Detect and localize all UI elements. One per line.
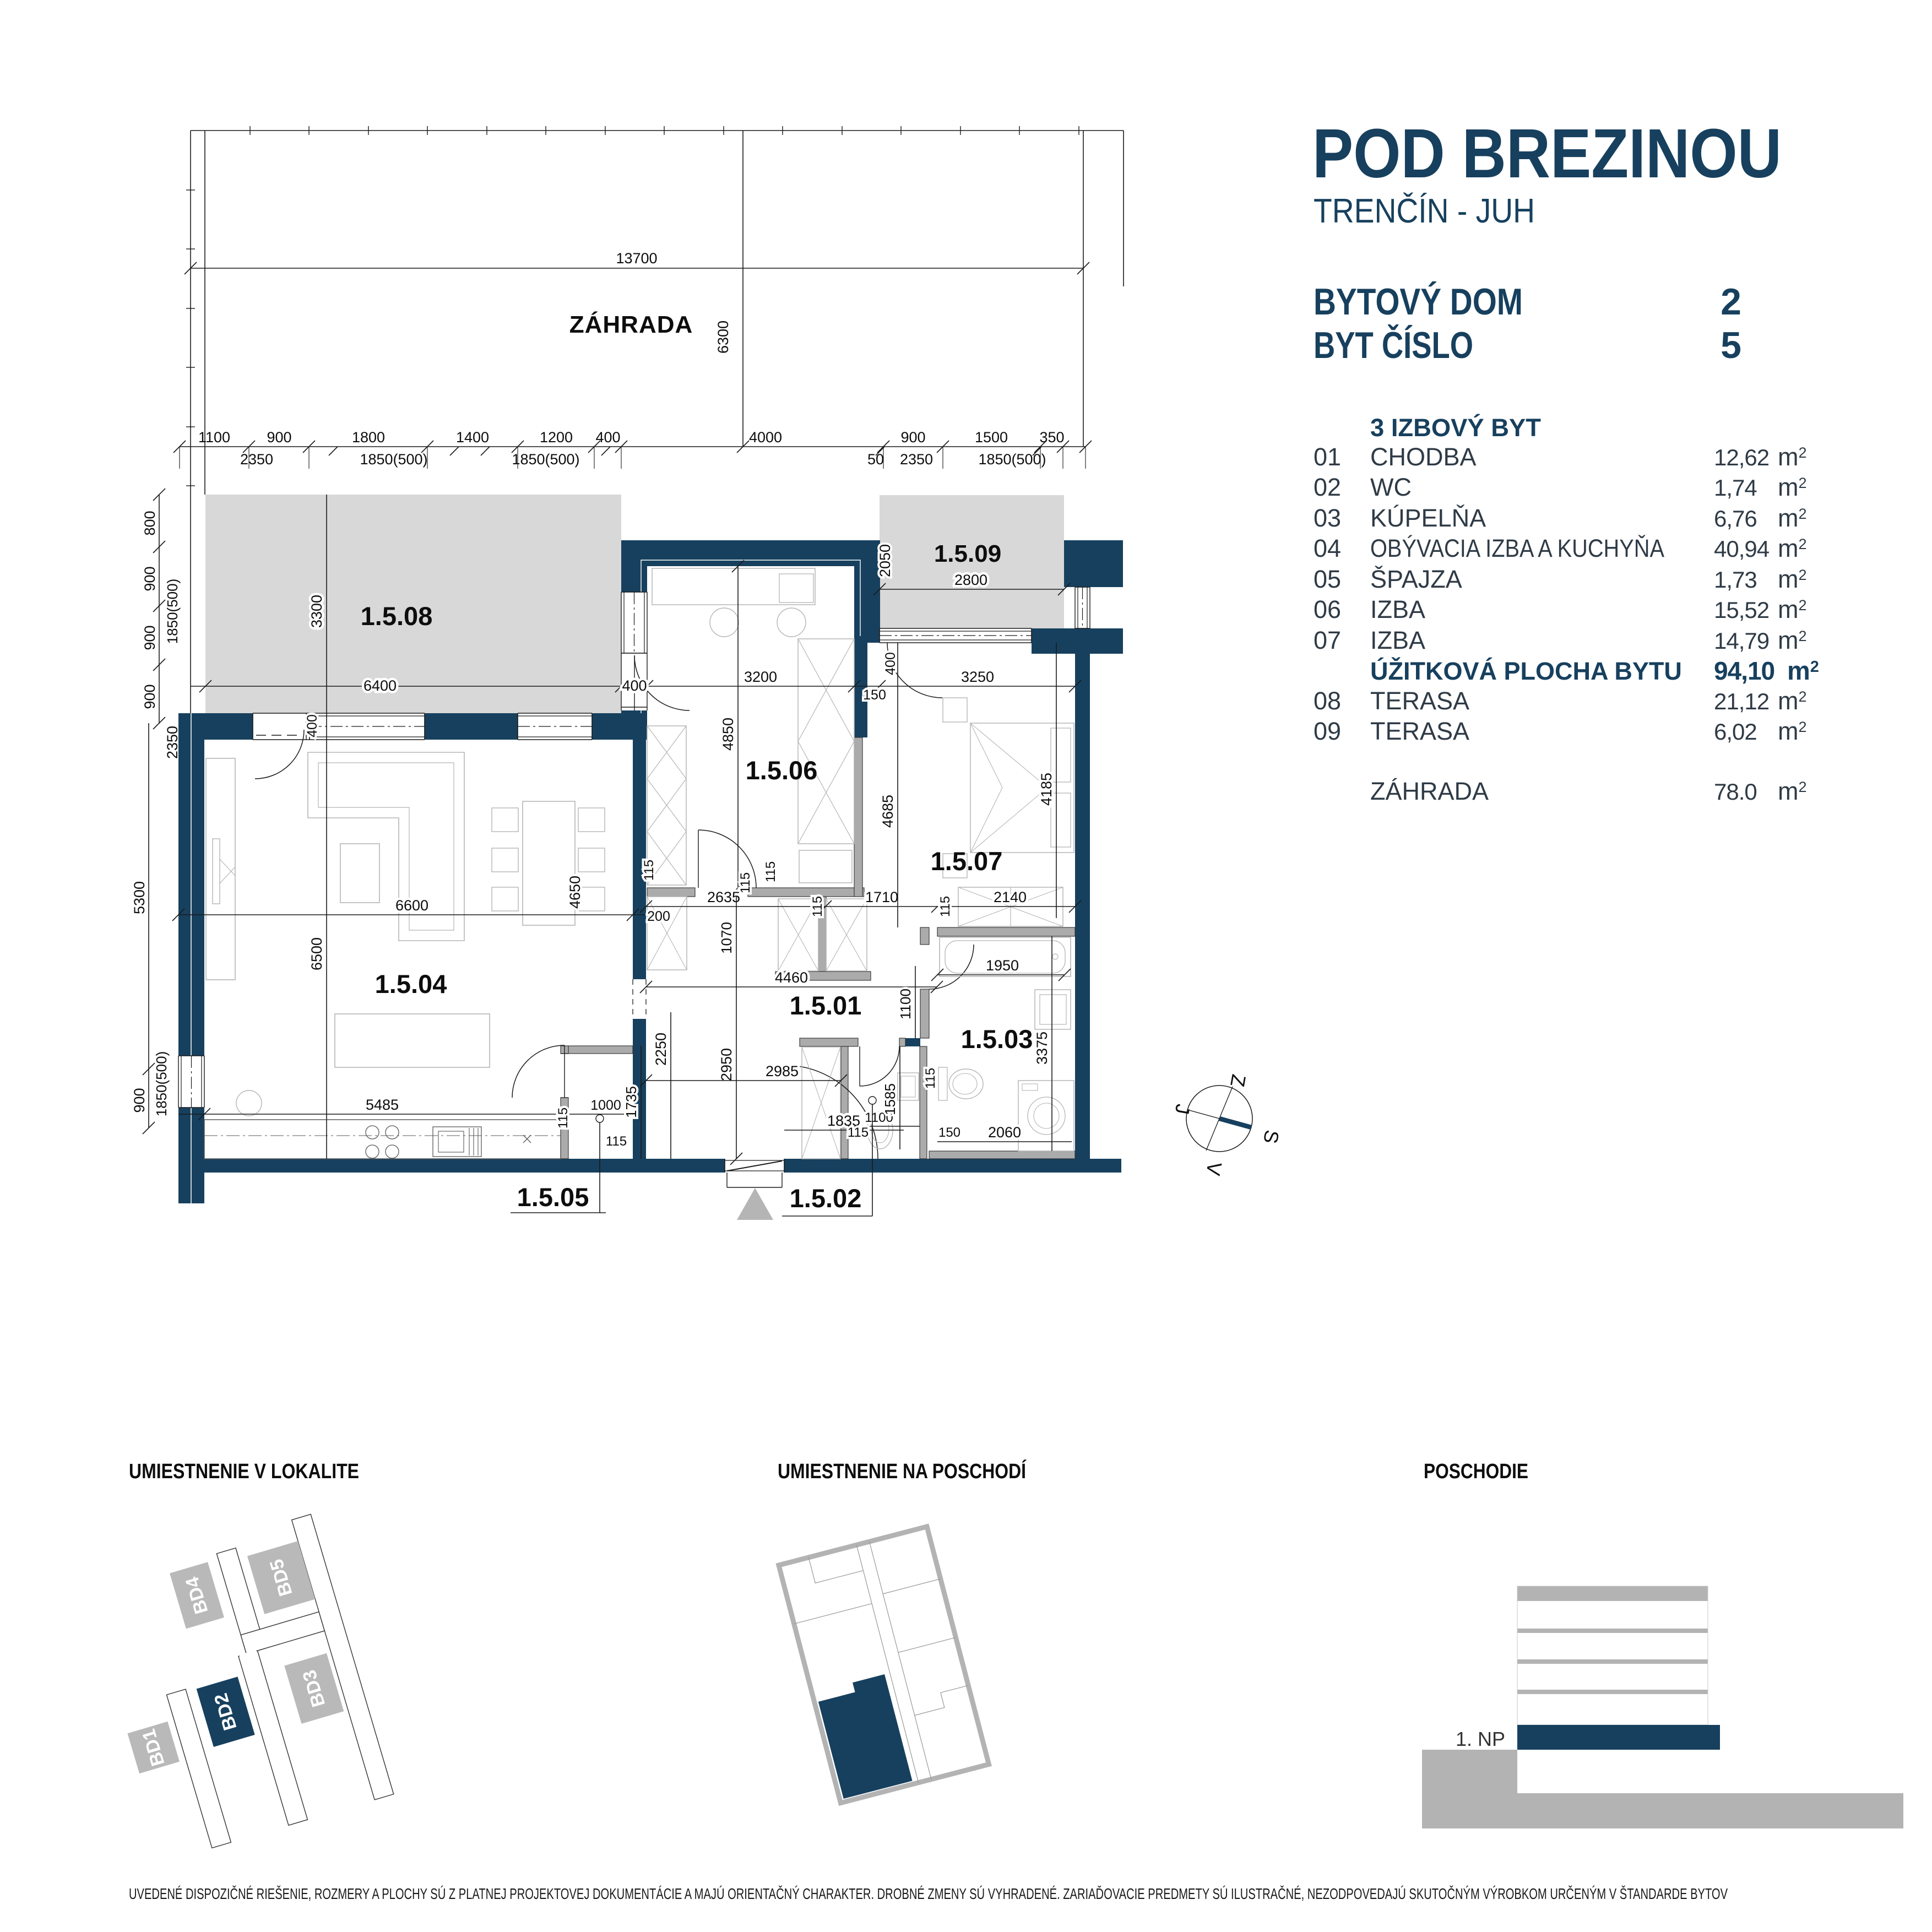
svg-text:TERASA: TERASA: [1370, 687, 1469, 715]
svg-text:6500: 6500: [308, 937, 325, 970]
svg-text:01: 01: [1314, 443, 1341, 471]
svg-text:TERASA: TERASA: [1370, 717, 1469, 745]
svg-text:BYTOVÝ DOM: BYTOVÝ DOM: [1314, 281, 1523, 323]
svg-text:115: 115: [763, 861, 778, 882]
svg-text:4650: 4650: [567, 876, 583, 909]
svg-text:900: 900: [267, 429, 291, 446]
svg-text:4460: 4460: [775, 969, 808, 986]
svg-text:5300: 5300: [131, 881, 148, 914]
svg-text:5: 5: [1721, 324, 1741, 366]
svg-text:2350: 2350: [240, 451, 273, 468]
svg-text:1.5.01: 1.5.01: [790, 991, 862, 1020]
svg-text:1.5.05: 1.5.05: [517, 1182, 589, 1212]
svg-text:900: 900: [131, 1088, 148, 1112]
svg-text:12,62: 12,62: [1714, 444, 1769, 470]
svg-text:4685: 4685: [880, 795, 896, 828]
svg-text:4850: 4850: [720, 718, 736, 751]
svg-text:1850(500): 1850(500): [153, 1051, 170, 1117]
svg-text:UMIESTNENIE NA POSCHODÍ: UMIESTNENIE NA POSCHODÍ: [778, 1459, 1027, 1483]
svg-text:1.5.09: 1.5.09: [934, 540, 1001, 567]
svg-text:1.5.03: 1.5.03: [961, 1024, 1033, 1054]
svg-text:115: 115: [642, 860, 656, 881]
svg-text:1800: 1800: [352, 429, 385, 446]
svg-text:1100: 1100: [198, 429, 230, 446]
svg-text:TRENČÍN - JUH: TRENČÍN - JUH: [1314, 192, 1535, 230]
svg-text:1.5.07: 1.5.07: [931, 846, 1003, 876]
svg-text:07: 07: [1314, 626, 1341, 654]
svg-text:400: 400: [622, 677, 647, 694]
svg-text:50: 50: [867, 451, 884, 468]
svg-text:6400: 6400: [363, 677, 397, 694]
svg-text:POSCHODIE: POSCHODIE: [1424, 1460, 1528, 1483]
svg-text:350: 350: [1039, 429, 1064, 446]
svg-text:4000: 4000: [749, 429, 782, 446]
svg-text:115: 115: [923, 1068, 938, 1089]
svg-text:1100: 1100: [897, 989, 914, 1019]
svg-text:08: 08: [1314, 687, 1341, 715]
svg-text:2350: 2350: [900, 451, 933, 468]
svg-text:IZBA: IZBA: [1370, 595, 1425, 623]
svg-text:BYT ČÍSLO: BYT ČÍSLO: [1314, 324, 1473, 366]
svg-text:1,74: 1,74: [1714, 475, 1757, 501]
svg-text:1.5.06: 1.5.06: [746, 756, 818, 785]
svg-text:4185: 4185: [1038, 773, 1055, 806]
svg-text:UMIESTNENIE V LOKALITE: UMIESTNENIE V LOKALITE: [129, 1460, 359, 1483]
svg-text:09: 09: [1314, 717, 1341, 745]
svg-text:1850(500): 1850(500): [978, 451, 1046, 468]
svg-text:1. NP: 1. NP: [1456, 1728, 1505, 1750]
svg-text:2250: 2250: [653, 1033, 669, 1066]
svg-text:5485: 5485: [366, 1097, 399, 1113]
svg-text:21,12: 21,12: [1714, 688, 1769, 714]
svg-text:ŠPAJZA: ŠPAJZA: [1370, 565, 1462, 593]
svg-text:400: 400: [883, 652, 898, 675]
svg-text:94,10: 94,10: [1714, 656, 1774, 685]
svg-text:2: 2: [1721, 281, 1741, 323]
svg-text:115: 115: [938, 896, 953, 917]
svg-text:1500: 1500: [975, 429, 1008, 446]
svg-text:KÚPELŇA: KÚPELŇA: [1370, 504, 1486, 532]
svg-text:2060: 2060: [988, 1124, 1021, 1141]
svg-text:03: 03: [1314, 504, 1341, 532]
svg-text:1735: 1735: [623, 1086, 639, 1118]
svg-text:2800: 2800: [954, 572, 987, 588]
svg-text:115: 115: [810, 896, 825, 917]
svg-text:OBÝVACIA IZBA A KUCHYŇA: OBÝVACIA IZBA A KUCHYŇA: [1370, 534, 1664, 562]
svg-text:1.5.02: 1.5.02: [790, 1184, 862, 1213]
svg-text:6,76: 6,76: [1714, 506, 1757, 531]
svg-text:1585: 1585: [882, 1083, 898, 1115]
svg-text:900: 900: [142, 566, 158, 591]
svg-text:115: 115: [738, 872, 753, 893]
svg-text:WC: WC: [1370, 473, 1412, 501]
svg-text:02: 02: [1314, 473, 1341, 501]
svg-text:3250: 3250: [961, 669, 994, 685]
svg-text:6600: 6600: [395, 897, 428, 914]
svg-text:2350: 2350: [164, 726, 181, 759]
svg-text:2140: 2140: [994, 889, 1027, 905]
svg-text:1710: 1710: [865, 889, 898, 905]
svg-text:ZÁHRADA: ZÁHRADA: [1370, 777, 1489, 805]
svg-text:IZBA: IZBA: [1370, 626, 1425, 654]
svg-text:1000: 1000: [590, 1098, 621, 1113]
svg-text:900: 900: [142, 684, 158, 709]
svg-text:ZÁHRADA: ZÁHRADA: [569, 311, 693, 338]
svg-text:UVEDENÉ DISPOZIČNÉ RIEŠENIE, R: UVEDENÉ DISPOZIČNÉ RIEŠENIE, ROZMERY A P…: [129, 1885, 1728, 1902]
svg-text:115: 115: [556, 1108, 571, 1128]
svg-text:1.5.04: 1.5.04: [375, 969, 447, 998]
svg-text:06: 06: [1314, 595, 1341, 623]
svg-text:CHODBA: CHODBA: [1370, 443, 1477, 471]
svg-text:3300: 3300: [308, 595, 325, 628]
svg-text:1850(500): 1850(500): [512, 451, 579, 468]
svg-text:1.5.08: 1.5.08: [361, 601, 433, 631]
svg-text:1,73: 1,73: [1714, 567, 1757, 593]
svg-text:150: 150: [938, 1125, 960, 1140]
svg-text:2050: 2050: [877, 544, 893, 577]
svg-text:ÚŽITKOVÁ PLOCHA BYTU: ÚŽITKOVÁ PLOCHA BYTU: [1370, 657, 1682, 685]
svg-text:78.0: 78.0: [1714, 779, 1757, 805]
svg-text:1850(500): 1850(500): [164, 579, 181, 644]
svg-text:400: 400: [595, 429, 620, 446]
svg-text:3 IZBOVÝ BYT: 3 IZBOVÝ BYT: [1370, 414, 1541, 442]
svg-text:3200: 3200: [744, 669, 777, 685]
svg-text:2950: 2950: [718, 1048, 735, 1081]
svg-text:40,94: 40,94: [1714, 536, 1770, 562]
svg-text:05: 05: [1314, 565, 1341, 593]
svg-text:115: 115: [848, 1125, 869, 1140]
svg-text:2635: 2635: [707, 889, 740, 905]
svg-text:1070: 1070: [718, 922, 735, 954]
svg-text:1950: 1950: [986, 957, 1019, 974]
svg-text:3375: 3375: [1034, 1032, 1050, 1065]
svg-text:2985: 2985: [766, 1063, 799, 1079]
svg-text:1850(500): 1850(500): [360, 451, 427, 468]
svg-text:6,02: 6,02: [1714, 719, 1757, 745]
svg-text:04: 04: [1314, 534, 1341, 562]
svg-text:15,52: 15,52: [1714, 597, 1769, 623]
svg-text:150: 150: [863, 687, 886, 703]
svg-text:900: 900: [900, 429, 925, 446]
svg-text:200: 200: [647, 909, 670, 924]
svg-text:115: 115: [606, 1134, 627, 1149]
svg-text:6300: 6300: [715, 321, 731, 354]
svg-text:1400: 1400: [456, 429, 489, 446]
svg-text:800: 800: [142, 511, 158, 535]
svg-text:14,79: 14,79: [1714, 628, 1769, 654]
svg-text:400: 400: [305, 714, 320, 737]
svg-text:POD BREZINOU: POD BREZINOU: [1312, 115, 1782, 192]
svg-text:900: 900: [142, 625, 158, 650]
svg-text:1200: 1200: [540, 429, 573, 446]
svg-text:13700: 13700: [616, 250, 657, 267]
